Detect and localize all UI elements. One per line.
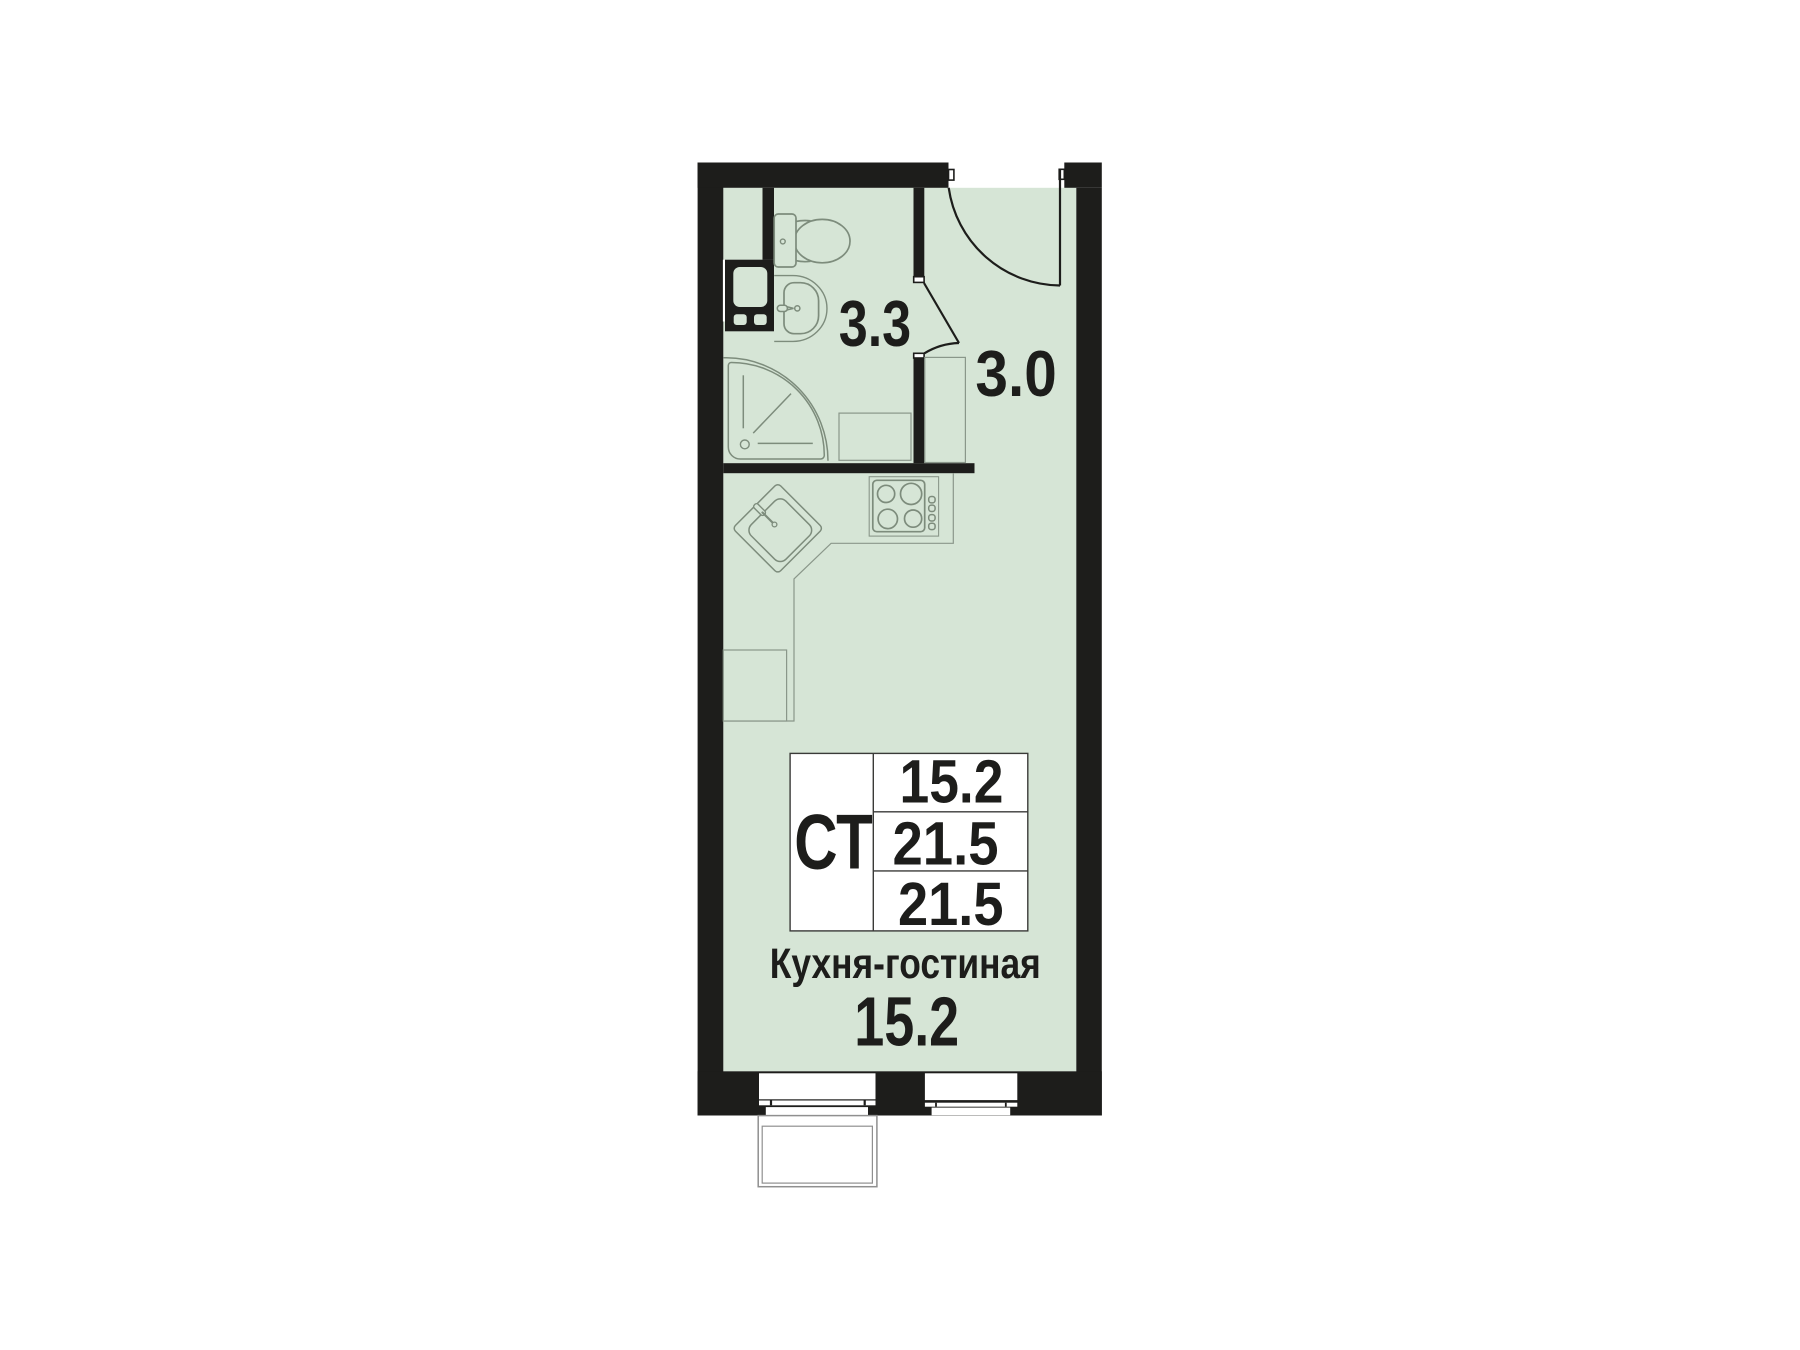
svg-text:21.5: 21.5 <box>898 870 1004 939</box>
svg-text:Кухня-гостиная: Кухня-гостиная <box>770 940 1041 987</box>
svg-text:21.5: 21.5 <box>893 809 999 878</box>
svg-text:СТ: СТ <box>794 800 873 886</box>
svg-text:3.0: 3.0 <box>975 337 1056 410</box>
svg-text:15.2: 15.2 <box>900 748 1004 817</box>
svg-text:3.3: 3.3 <box>839 288 912 360</box>
svg-text:15.2: 15.2 <box>854 983 959 1061</box>
